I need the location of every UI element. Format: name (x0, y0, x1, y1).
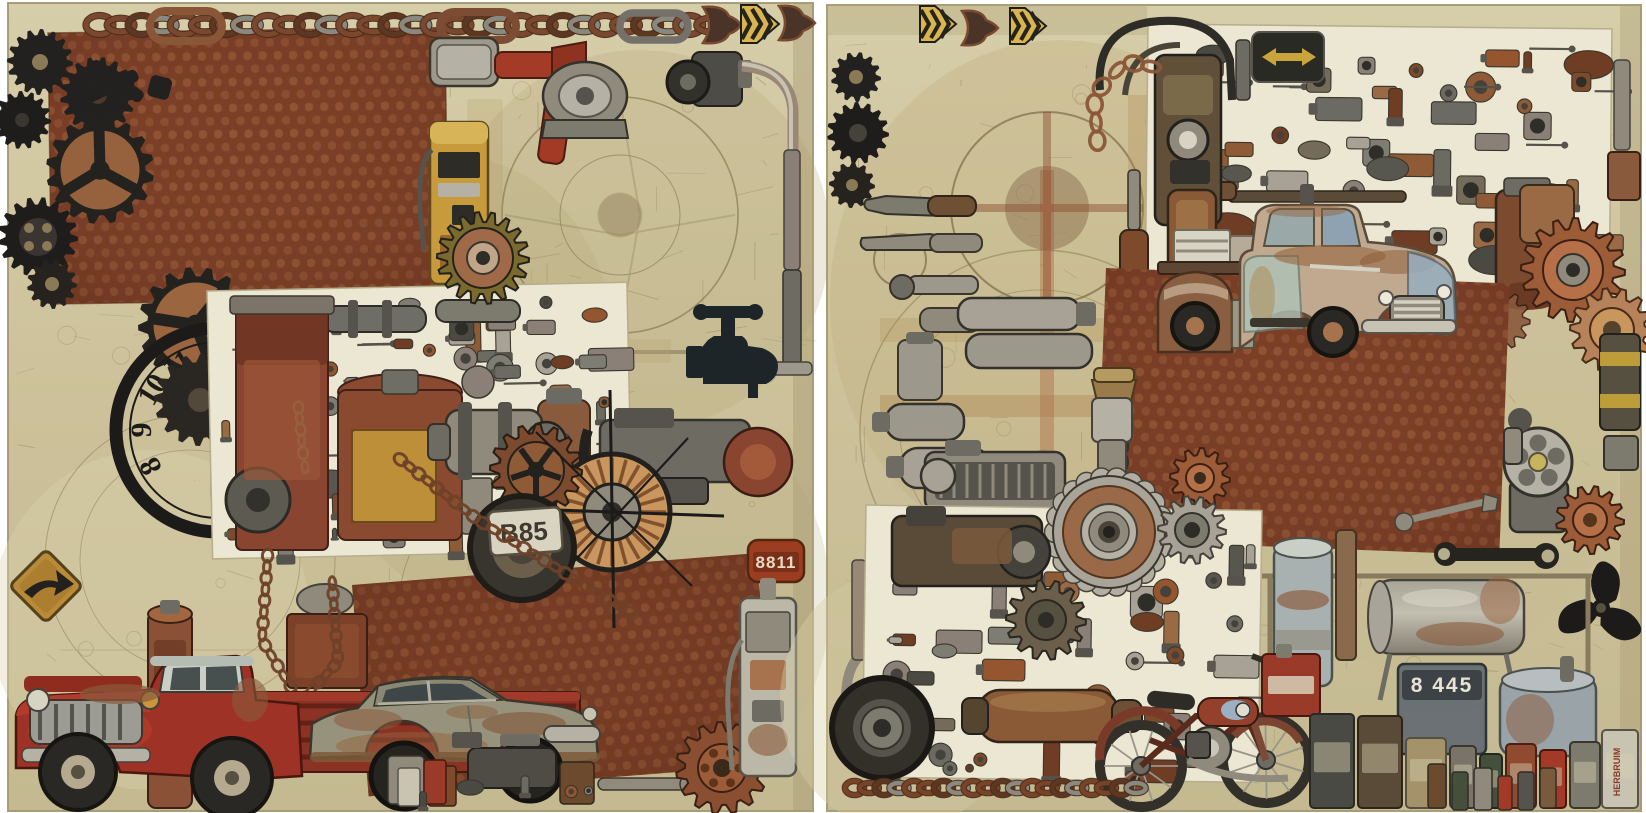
svg-text:9: 9 (125, 423, 158, 438)
svg-text:8 445: 8 445 (1411, 674, 1474, 697)
svg-text:HERBRUIM: HERBRUIM (1612, 748, 1622, 797)
svg-text:8811: 8811 (756, 553, 797, 572)
